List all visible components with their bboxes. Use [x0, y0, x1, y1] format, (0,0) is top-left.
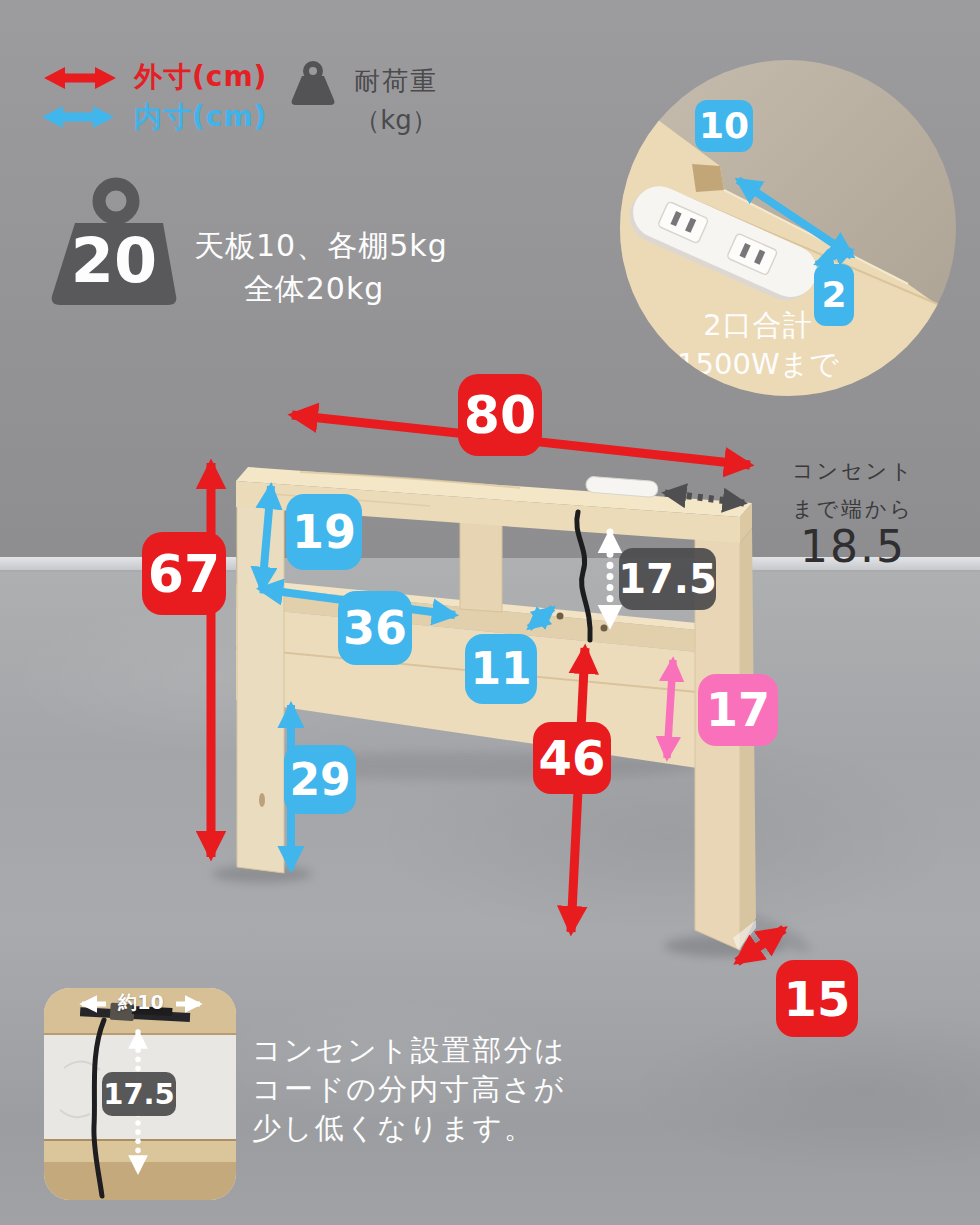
outlet-note-line2: まで端から: [792, 495, 914, 523]
dim-rear-height-badge: 46: [533, 722, 611, 794]
cord-closeup-inset: 約10 17.5: [44, 988, 236, 1200]
outlet-caption-line1: 2口合計: [678, 306, 838, 346]
dim-panel-height-badge: 17: [698, 674, 778, 746]
left-leg: [237, 500, 284, 873]
footnote-line3: 少し低くなります。: [252, 1109, 535, 1149]
footnote-line1: コンセント設置部分は: [252, 1031, 566, 1071]
dim-outer-width-badge: 80: [458, 374, 542, 456]
cord-height-badge: 17.5: [102, 1072, 176, 1116]
dim-outlet-clearance-badge: 17.5: [619, 548, 716, 610]
legend-load-label-line1: 耐荷重: [344, 64, 448, 99]
left-leg-knot: [259, 793, 265, 807]
load-desc-line1: 天板10、各棚5kg: [194, 226, 448, 267]
shelf-divider: [460, 522, 502, 612]
outlet-note-value: 18.5: [800, 521, 906, 572]
legend-load-label-line2: （kg）: [344, 103, 448, 138]
product-dimension-diagram: 外寸(cm) 内寸(cm) 耐荷重 （kg） 20 天板10、各棚5kg 全体2…: [0, 0, 980, 1225]
dim-base-depth-badge: 15: [776, 960, 858, 1037]
footnote-line2: コードの分内寸高さが: [252, 1070, 565, 1110]
outlet-closeup-inset: 10 2 2口合計 1500Wまで: [620, 60, 956, 396]
cord-width-label: 約10: [104, 990, 178, 1016]
load-desc-line2: 全体20kg: [194, 269, 434, 310]
load-total-badge: 20: [50, 224, 178, 297]
dim-outer-height-badge: 67: [142, 532, 226, 615]
shelf-screw-right: [601, 625, 608, 632]
weight-icon-small: [290, 61, 338, 107]
dim-shelf-height-badge: 19: [286, 494, 362, 570]
shelf-screw-left: [557, 613, 564, 620]
dim-shelf-depth-badge: 11: [465, 634, 537, 704]
inset-cable-notch: [692, 164, 724, 192]
legend-outer-label: 外寸(cm): [134, 58, 267, 96]
inner-dimension-arrow-icon: [40, 103, 116, 131]
outlet-note-line1: コンセント: [792, 457, 914, 485]
dim-leg-open-height-badge: 29: [284, 745, 356, 814]
legend-inner-label: 内寸(cm): [134, 98, 267, 136]
outer-dimension-arrow-icon: [42, 64, 118, 92]
dim-shelf-width-badge: 36: [338, 591, 412, 665]
dim-outlet-width-badge: 10: [695, 100, 753, 152]
